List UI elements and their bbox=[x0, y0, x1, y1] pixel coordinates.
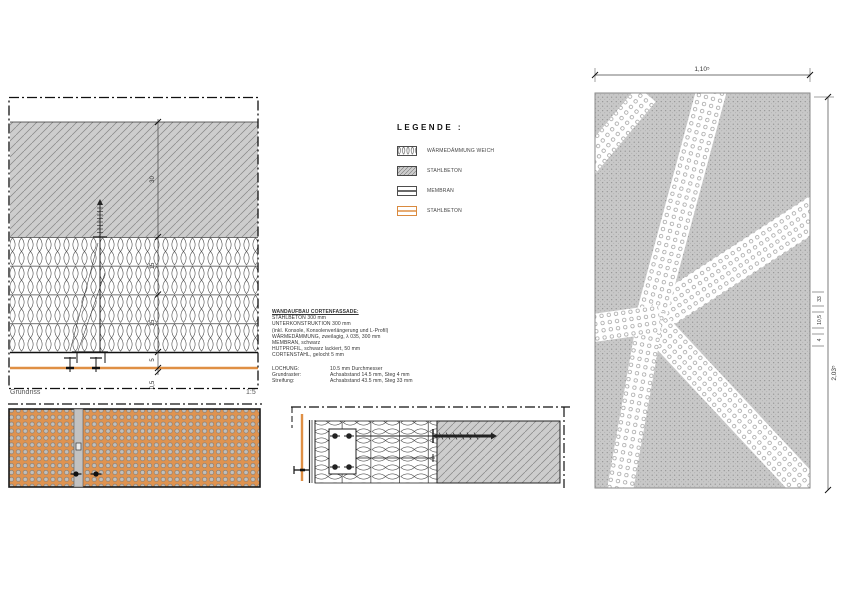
legend: LEGENDE : WÄRMEDÄMMUNG WEICH bbox=[397, 123, 577, 221]
corten-swatch-icon bbox=[397, 206, 417, 216]
corten-front-detail-drawing bbox=[8, 400, 262, 495]
legend-item: STAHLBETON bbox=[397, 161, 577, 181]
horizontal-section-drawing bbox=[285, 400, 570, 495]
spec-row-label: Streifung: bbox=[272, 378, 330, 384]
console-bracket bbox=[329, 429, 356, 474]
dim-streifung-steg: 33 bbox=[817, 296, 823, 302]
facade-bolt bbox=[64, 357, 76, 372]
joint-fixing-plate bbox=[76, 443, 81, 450]
legend-item: STAHLBETON bbox=[397, 201, 577, 221]
dim-hut-profile: 5 bbox=[150, 358, 156, 362]
perforated-corten-panel bbox=[9, 409, 260, 487]
plan-detail-drawing: 30 15 15 5 0,5 bbox=[8, 95, 260, 395]
legend-item: MEMBRAN bbox=[397, 181, 577, 201]
dim-corten: 0,5 bbox=[150, 380, 156, 389]
perforation-spec-table: LOCHUNG: 10.5 mm Durchmesser Grundraster… bbox=[272, 366, 447, 385]
perforation-dimensions: 33 10,5 4 bbox=[812, 292, 824, 346]
legend-item: WÄRMEDÄMMUNG WEICH bbox=[397, 141, 577, 161]
insulation-swatch-icon bbox=[397, 146, 417, 156]
dim-grundraster-steg: 4 bbox=[817, 338, 823, 341]
spec-row-value: Achsabstand 43.5 mm, Steg 33 mm bbox=[330, 378, 413, 384]
panel-elevation-drawing: 1,10⁵ 33 10,5 4 bbox=[588, 60, 842, 500]
wall-spec-line: CORTENSTAHL, gelocht 5 mm bbox=[272, 352, 447, 358]
dim-insulation-2: 15 bbox=[150, 319, 156, 326]
height-dimension: 2,03⁵ bbox=[814, 94, 838, 493]
hut-profile-membrane bbox=[310, 420, 316, 483]
dim-insulation-1: 15 bbox=[150, 262, 156, 269]
concrete-swatch-icon bbox=[397, 166, 417, 176]
legend-item-label: STAHLBETON bbox=[427, 168, 462, 174]
legend-item-label: STAHLBETON bbox=[427, 208, 462, 214]
concrete-band bbox=[10, 122, 258, 237]
legend-item-label: MEMBRAN bbox=[427, 188, 454, 194]
panel-width-label: 1,10⁵ bbox=[694, 66, 710, 73]
plan-caption: Grundriss bbox=[10, 389, 40, 396]
insulation-band bbox=[10, 237, 258, 352]
legend-item-label: WÄRMEDÄMMUNG WEICH bbox=[427, 148, 494, 154]
dim-concrete: 30 bbox=[150, 176, 156, 183]
width-dimension: 1,10⁵ bbox=[592, 66, 813, 82]
perforation-spec-row: Streifung: Achsabstand 43.5 mm, Steg 33 … bbox=[272, 378, 447, 384]
drawing-sheet: 30 15 15 5 0,5 Grundriss 1:5 LEGENDE : W… bbox=[0, 0, 842, 595]
dim-hole-diameter: 10,5 bbox=[817, 315, 823, 325]
legend-title: LEGENDE : bbox=[397, 123, 577, 132]
wall-spec-block: WANDAUFBAU CORTENFASSADE: STAHLBETON 300… bbox=[272, 309, 447, 384]
panel-height-label: 2,03⁵ bbox=[831, 365, 838, 381]
plan-scale: 1:5 bbox=[246, 389, 256, 396]
membrane-swatch-icon bbox=[397, 186, 417, 196]
perforated-panel bbox=[588, 79, 842, 500]
concrete-block bbox=[437, 421, 560, 483]
facade-bolt bbox=[90, 357, 102, 372]
